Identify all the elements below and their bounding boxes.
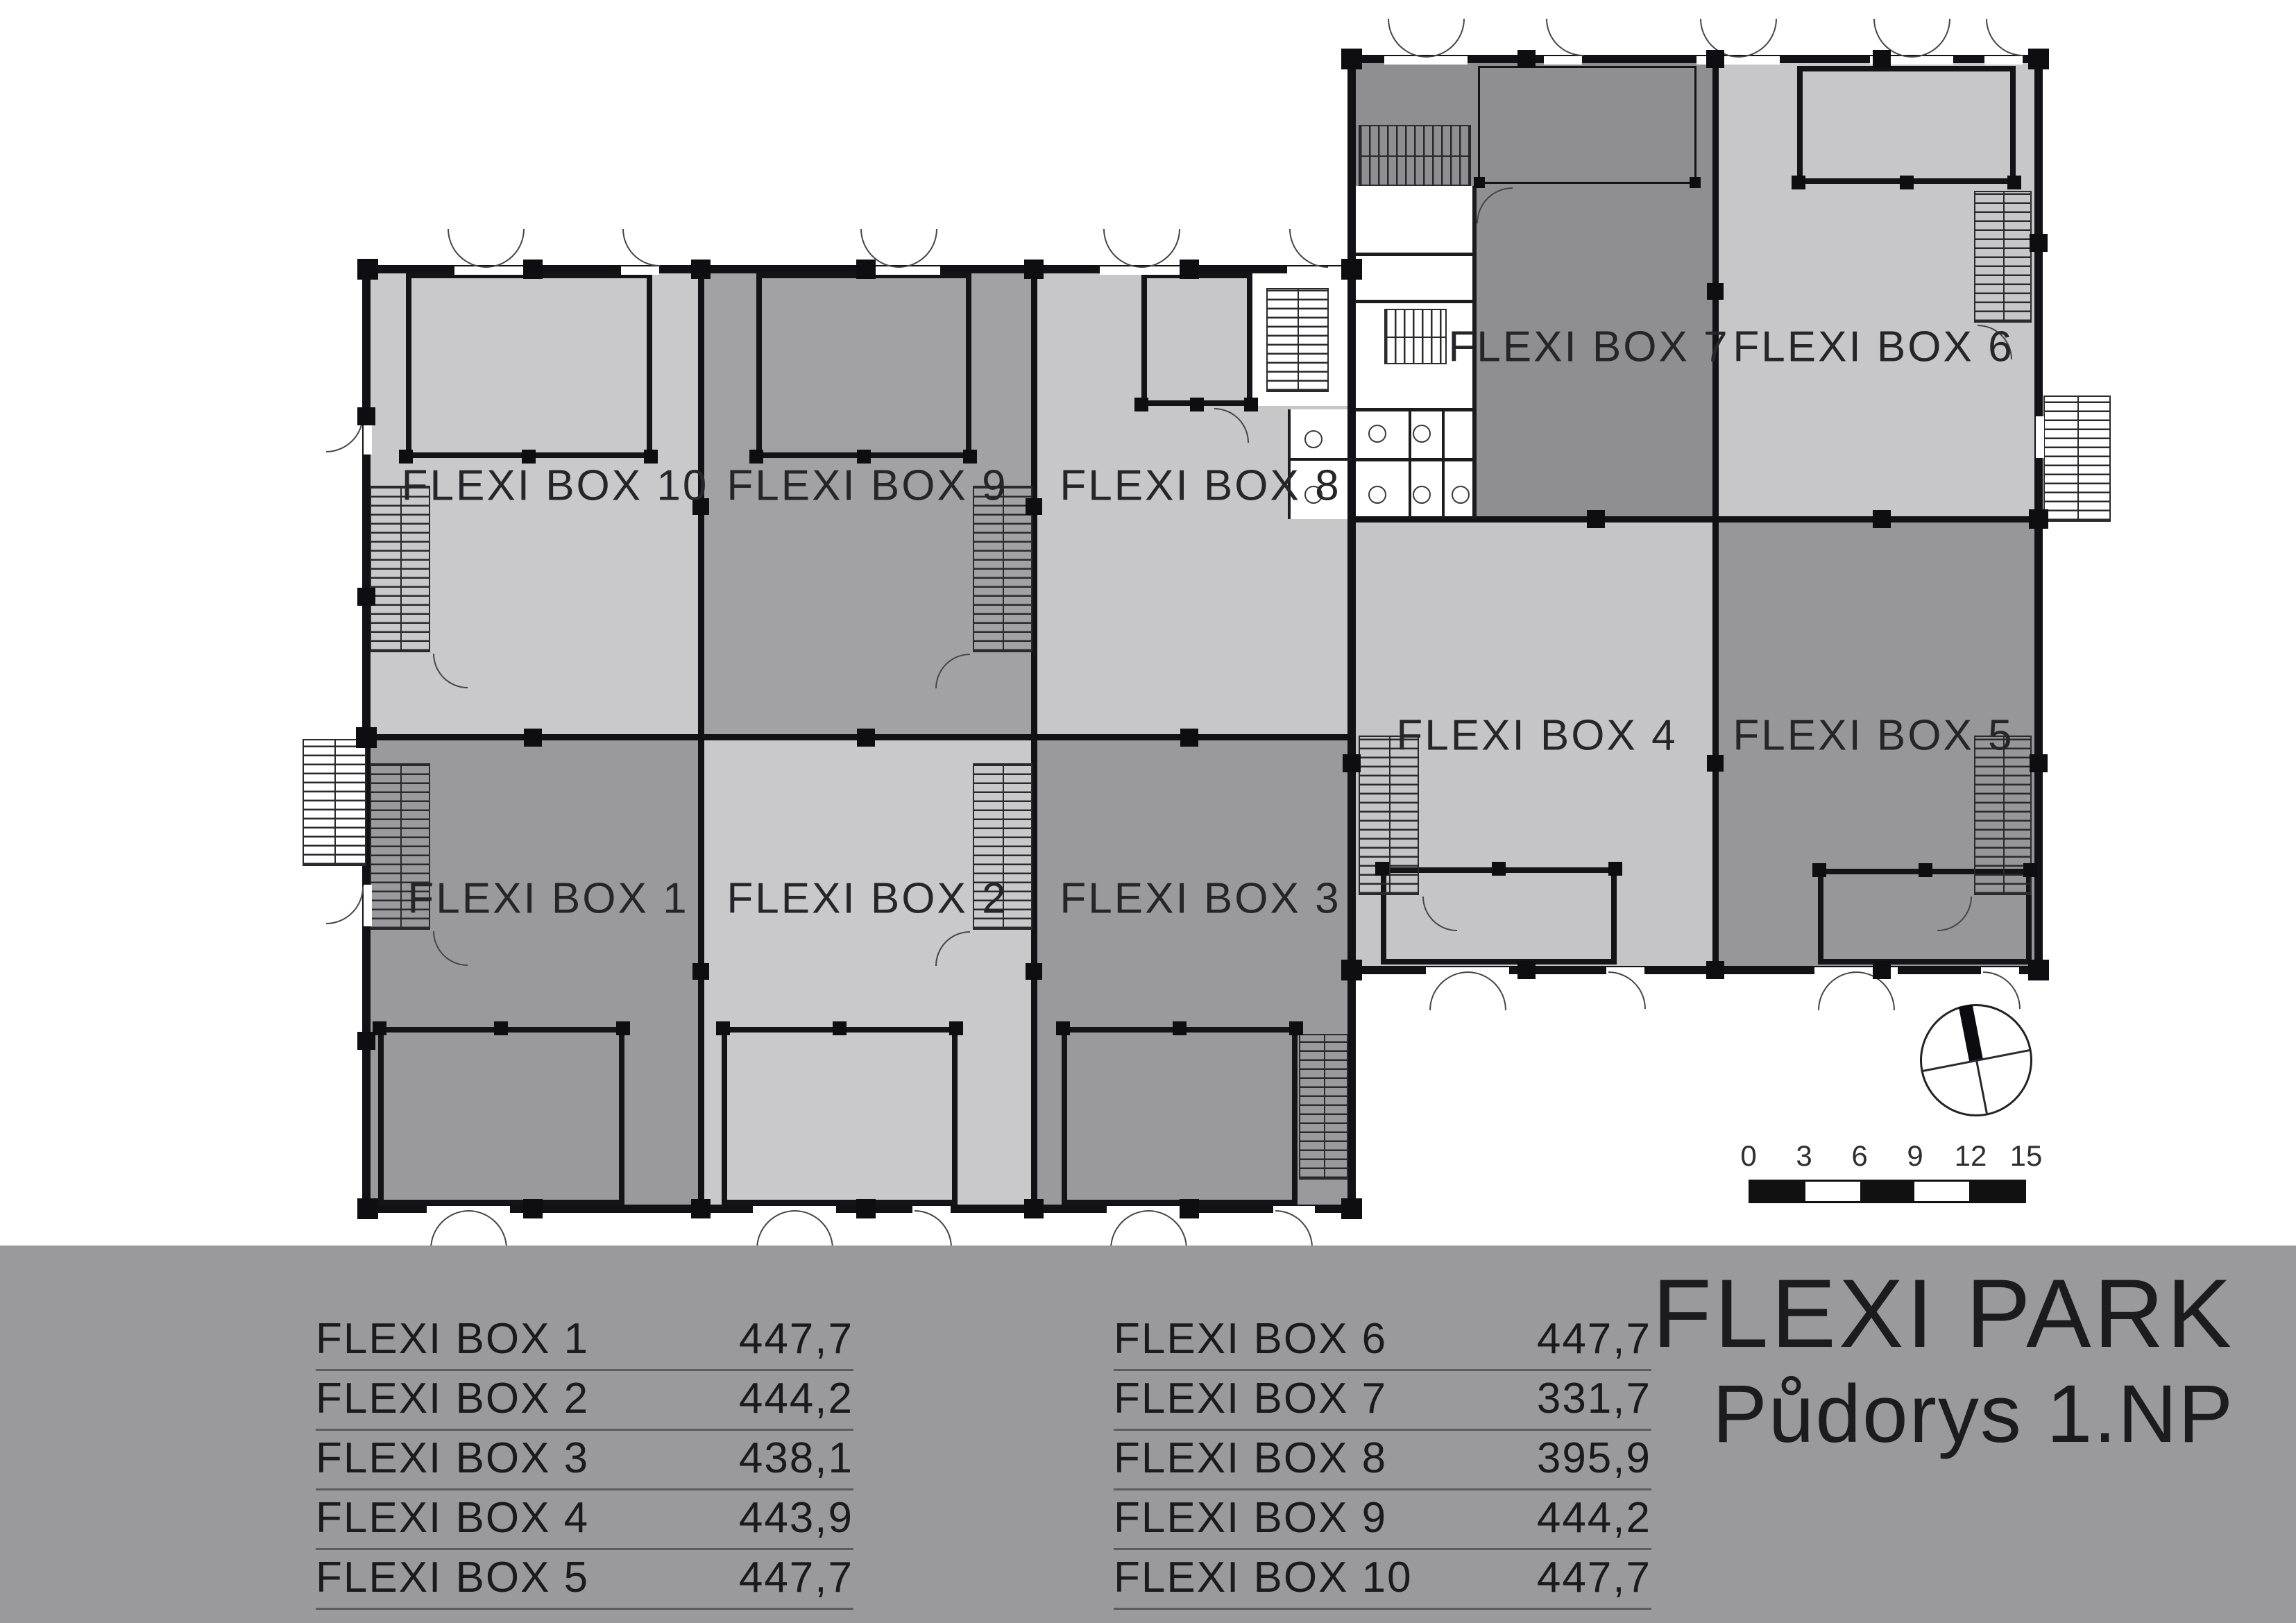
door-icon	[1818, 971, 1857, 1010]
legend-unit-area: 331,7	[1537, 1374, 1651, 1423]
page-title: FLEXI PARK	[1652, 1259, 2234, 1368]
legend-unit-name: FLEXI BOX 2	[316, 1374, 589, 1423]
stair-icon	[973, 486, 1032, 652]
pilaster	[1341, 49, 1362, 69]
pilaster	[523, 260, 543, 279]
legend-unit-name: FLEXI BOX 6	[1114, 1314, 1387, 1363]
unit-label-flexi-box-7: FLEXI BOX 7	[1448, 323, 1729, 372]
scale-tick-label: 12	[1955, 1139, 1987, 1173]
pilaster	[1341, 259, 1362, 280]
pilaster	[1900, 176, 1914, 189]
pilaster	[1517, 50, 1536, 68]
pilaster	[2023, 863, 2037, 877]
pilaster	[2028, 960, 2049, 980]
pilaster	[494, 1021, 508, 1035]
pilaster	[716, 1021, 730, 1035]
pilaster	[1026, 498, 1042, 515]
pilaster	[356, 727, 377, 748]
stair-icon	[1384, 309, 1447, 364]
scale-bar-segment	[1805, 1182, 1860, 1201]
unit-label-flexi-box-4: FLEXI BOX 4	[1396, 711, 1677, 760]
pilaster	[1608, 862, 1622, 876]
door-icon	[756, 1210, 795, 1249]
pilaster	[691, 260, 711, 279]
inner-room	[722, 1027, 958, 1205]
legend-row: FLEXI BOX 6447,7	[1114, 1311, 1651, 1371]
inner-room	[1141, 273, 1252, 406]
legend-row: FLEXI BOX 8395,9	[1114, 1431, 1651, 1490]
legend-unit-area: 438,1	[739, 1434, 853, 1483]
legend-row: FLEXI BOX 3438,1	[316, 1431, 853, 1490]
pilaster	[2007, 176, 2021, 189]
north-arrow-icon	[1910, 994, 2042, 1126]
compass-needle	[1959, 1005, 1983, 1062]
pilaster	[1289, 1021, 1303, 1035]
pilaster	[357, 407, 375, 425]
inner-room	[756, 273, 971, 458]
pilaster	[692, 963, 709, 980]
pilaster	[1024, 1199, 1044, 1218]
pilaster	[949, 1021, 963, 1035]
door-icon	[430, 1210, 469, 1249]
scale-tick-label: 6	[1851, 1139, 1867, 1173]
pilaster	[1873, 961, 1891, 979]
pilaster	[1341, 960, 1362, 980]
door-icon	[915, 1210, 952, 1248]
inner-room	[1797, 66, 2016, 184]
stair-icon	[370, 486, 430, 652]
legend-unit-name: FLEXI BOX 9	[1114, 1493, 1387, 1543]
legend-unit-name: FLEXI BOX 1	[316, 1314, 589, 1363]
core-partition	[1355, 300, 1474, 303]
unit-label-flexi-box-2: FLEXI BOX 2	[726, 874, 1007, 924]
pilaster	[1919, 863, 1932, 877]
pilaster	[1706, 961, 1724, 979]
door-icon	[1468, 971, 1506, 1010]
pilaster	[856, 1199, 876, 1218]
legend-unit-name: FLEXI BOX 5	[316, 1553, 589, 1602]
scale-tick-label: 0	[1740, 1139, 1756, 1173]
pilaster	[1180, 1199, 1199, 1218]
door-icon	[899, 229, 937, 268]
pilaster	[2030, 234, 2048, 252]
legend-unit-area: 447,7	[1537, 1553, 1651, 1602]
core-partition	[1355, 253, 1474, 256]
legend-band: FLEXI BOX 1447,7FLEXI BOX 2444,2FLEXI BO…	[0, 1246, 2296, 1623]
stair-icon	[1359, 125, 1471, 186]
door-opening	[621, 266, 659, 275]
pilaster	[373, 1021, 386, 1035]
pilaster	[1706, 50, 1724, 68]
pilaster	[1190, 398, 1204, 411]
pilaster	[357, 259, 378, 280]
legend-unit-area: 443,9	[739, 1493, 853, 1543]
page-subtitle: Půdorys 1.NP	[1652, 1368, 2234, 1460]
pilaster	[1180, 260, 1199, 279]
core-partition	[1442, 409, 1445, 519]
legend-unit-area: 444,2	[1537, 1493, 1651, 1543]
pilaster	[833, 1021, 847, 1035]
legend-unit-name: FLEXI BOX 3	[316, 1434, 589, 1483]
unit-label-flexi-box-8: FLEXI BOX 8	[1060, 461, 1341, 511]
door-icon	[622, 229, 660, 266]
external-stair-icon	[303, 739, 366, 866]
party-wall	[1356, 516, 2034, 522]
pilaster	[856, 260, 876, 279]
pilaster	[2028, 49, 2049, 69]
door-icon	[1983, 971, 2021, 1009]
pilaster	[2029, 509, 2048, 529]
legend-row: FLEXI BOX 1447,7	[316, 1311, 853, 1371]
outer-wall	[1347, 55, 1356, 974]
inner-room	[1478, 66, 1697, 184]
door-icon	[1141, 229, 1180, 268]
floorplan-sheet: FLEXI BOX 10FLEXI BOX 9FLEXI BOX 8FLEXI …	[0, 0, 2296, 1623]
wc-fixture-icon	[1368, 486, 1386, 504]
pilaster	[1341, 1198, 1362, 1219]
legend-unit-name: FLEXI BOX 8	[1114, 1434, 1387, 1483]
pilaster	[357, 1198, 378, 1219]
legend-row: FLEXI BOX 9444,2	[1114, 1490, 1651, 1550]
door-opening	[364, 885, 372, 926]
pilaster	[1812, 863, 1826, 877]
wc-fixture-icon	[1452, 486, 1470, 504]
legend-unit-area: 395,9	[1537, 1434, 1651, 1483]
door-opening	[2036, 416, 2044, 458]
unit-label-flexi-box-3: FLEXI BOX 3	[1060, 874, 1341, 924]
door-icon	[1912, 19, 1950, 58]
unit-label-flexi-box-1: FLEXI BOX 1	[407, 874, 688, 924]
door-icon	[1110, 1210, 1149, 1249]
door-opening	[1544, 56, 1582, 65]
door-icon	[1608, 971, 1646, 1009]
pilaster	[1873, 510, 1891, 528]
legend-table-left: FLEXI BOX 1447,7FLEXI BOX 2444,2FLEXI BO…	[316, 1311, 853, 1610]
door-icon	[486, 229, 525, 268]
door-icon	[326, 887, 364, 924]
scale-bar-segment	[1914, 1182, 1969, 1201]
pilaster	[523, 1199, 543, 1218]
wc-fixture-icon	[1413, 425, 1431, 443]
inner-room	[406, 273, 652, 458]
legend-unit-name: FLEXI BOX 7	[1114, 1374, 1387, 1423]
pilaster	[1024, 260, 1044, 279]
legend-unit-area: 444,2	[739, 1374, 853, 1423]
scale-tick-label: 9	[1907, 1139, 1923, 1173]
pilaster	[1375, 862, 1389, 876]
unit-label-flexi-box-9: FLEXI BOX 9	[726, 461, 1007, 511]
core-partition	[1409, 409, 1411, 519]
unit-label-flexi-box-6: FLEXI BOX 6	[1733, 323, 2014, 372]
wc-fixture-icon	[1368, 425, 1386, 443]
legend-row: FLEXI BOX 2444,2	[316, 1371, 853, 1431]
stair-icon	[1299, 1034, 1348, 1180]
pilaster	[1873, 50, 1891, 68]
scale-tick-label: 15	[2010, 1139, 2043, 1173]
compass-south	[1975, 1060, 1988, 1115]
door-icon	[1429, 971, 1468, 1010]
legend-row: FLEXI BOX 7331,7	[1114, 1371, 1651, 1431]
legend-unit-name: FLEXI BOX 4	[316, 1493, 589, 1543]
core-partition	[1291, 458, 1352, 461]
legend-unit-area: 447,7	[1537, 1314, 1651, 1363]
scale-bar-segment	[1751, 1182, 1805, 1201]
door-icon	[1986, 19, 2023, 56]
door-icon	[1738, 19, 1777, 58]
inner-room	[378, 1027, 624, 1205]
door-icon	[1289, 229, 1328, 268]
door-icon	[1546, 19, 1583, 56]
pilaster	[1707, 283, 1724, 300]
scale-bar-segment	[1969, 1182, 2024, 1201]
door-icon	[794, 1210, 833, 1249]
door-icon	[1275, 1210, 1313, 1248]
core-partition	[1355, 458, 1474, 461]
legend-row: FLEXI BOX 4443,9	[316, 1490, 853, 1550]
unit-label-flexi-box-5: FLEXI BOX 5	[1733, 711, 2014, 760]
legend-unit-area: 447,7	[739, 1314, 853, 1363]
pilaster	[1180, 729, 1198, 747]
pilaster	[1690, 177, 1701, 188]
door-icon	[468, 1210, 507, 1249]
pilaster	[1707, 755, 1724, 772]
pilaster	[524, 729, 542, 747]
unit-label-flexi-box-10: FLEXI BOX 10	[402, 461, 709, 511]
door-opening	[1984, 56, 2023, 65]
door-icon	[448, 229, 486, 268]
legend-row: FLEXI BOX 10447,7	[1114, 1550, 1651, 1610]
door-icon	[1388, 19, 1427, 58]
pilaster	[857, 729, 875, 747]
pilaster	[1056, 1021, 1070, 1035]
pilaster	[1587, 510, 1605, 528]
legend-table-right: FLEXI BOX 6447,7FLEXI BOX 7331,7FLEXI BO…	[1114, 1311, 1651, 1610]
door-icon	[1103, 229, 1142, 268]
title-block: FLEXI PARK Půdorys 1.NP	[1652, 1259, 2234, 1460]
core-partition	[1355, 408, 1474, 411]
pilaster	[1474, 177, 1485, 188]
stair-icon	[1974, 191, 2032, 323]
legend-row: FLEXI BOX 5447,7	[316, 1550, 853, 1610]
external-stair-icon	[2043, 396, 2111, 522]
pilaster	[1244, 398, 1258, 411]
pilaster	[357, 588, 375, 606]
pilaster	[616, 1021, 630, 1035]
scale-bar	[1749, 1180, 2026, 1203]
scale-bar-segment	[1860, 1182, 1915, 1201]
pilaster	[1134, 398, 1148, 411]
pilaster	[1173, 1021, 1187, 1035]
wc-fixture-icon	[1304, 430, 1323, 448]
legend-unit-name: FLEXI BOX 10	[1114, 1553, 1413, 1602]
floor-plan: FLEXI BOX 10FLEXI BOX 9FLEXI BOX 8FLEXI …	[0, 0, 2296, 1246]
pilaster	[1492, 862, 1506, 876]
door-icon	[1426, 19, 1465, 58]
pilaster	[1343, 754, 1361, 772]
pilaster	[691, 1199, 711, 1218]
scale-tick-label: 3	[1796, 1139, 1812, 1173]
pilaster	[1792, 176, 1805, 189]
pilaster	[1026, 963, 1042, 980]
party-wall	[1712, 62, 1719, 966]
legend-unit-area: 447,7	[739, 1553, 853, 1602]
stair-icon	[1266, 288, 1329, 392]
pilaster	[2030, 754, 2048, 772]
inner-room	[1062, 1027, 1298, 1205]
pilaster	[1517, 961, 1536, 979]
door-opening	[1287, 266, 1346, 275]
wc-fixture-icon	[1413, 486, 1431, 504]
